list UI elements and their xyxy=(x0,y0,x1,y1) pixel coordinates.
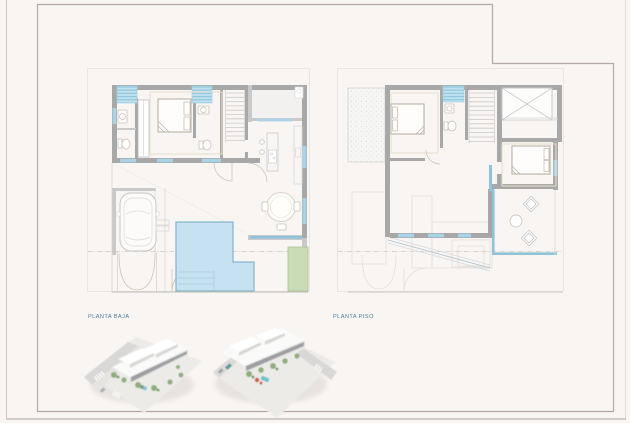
bathroom xyxy=(198,106,211,150)
skylight xyxy=(117,86,137,103)
lounge-chair xyxy=(521,230,537,246)
architectural-plan-sheet: PLANTA BAJA PLANTA PISO xyxy=(0,0,630,423)
double-bed xyxy=(158,99,191,132)
site-render-right xyxy=(213,328,337,418)
bathroom xyxy=(444,104,456,131)
double-height-void xyxy=(502,88,557,120)
bathroom xyxy=(117,110,136,149)
ground-floor-plan xyxy=(112,85,308,292)
car xyxy=(117,193,159,251)
lounge-chair xyxy=(523,196,539,212)
double-bed xyxy=(391,104,424,134)
doors xyxy=(214,163,267,182)
wardrobe xyxy=(138,100,149,157)
garden-strip xyxy=(288,247,308,291)
skylight xyxy=(443,86,464,102)
entry-porch xyxy=(252,90,302,118)
red-flowers xyxy=(259,381,262,384)
roof-terrace xyxy=(492,189,557,255)
site-render-left xyxy=(84,337,202,413)
gravel-roof xyxy=(348,88,385,162)
dining-table xyxy=(262,193,300,231)
side-table xyxy=(510,215,522,227)
bedroom xyxy=(391,93,440,164)
skylight xyxy=(192,86,212,103)
bedroom xyxy=(502,144,556,186)
ground-floor-label: PLANTA BAJA xyxy=(88,314,130,320)
staircase xyxy=(469,90,496,143)
upper-floor-label: PLANTA PISO xyxy=(333,314,374,320)
entry-porch-detail xyxy=(295,87,303,98)
swimming-pool xyxy=(176,222,254,291)
staircase xyxy=(225,90,245,142)
red-flowers xyxy=(255,378,259,382)
upper-floor-plan xyxy=(348,85,563,292)
